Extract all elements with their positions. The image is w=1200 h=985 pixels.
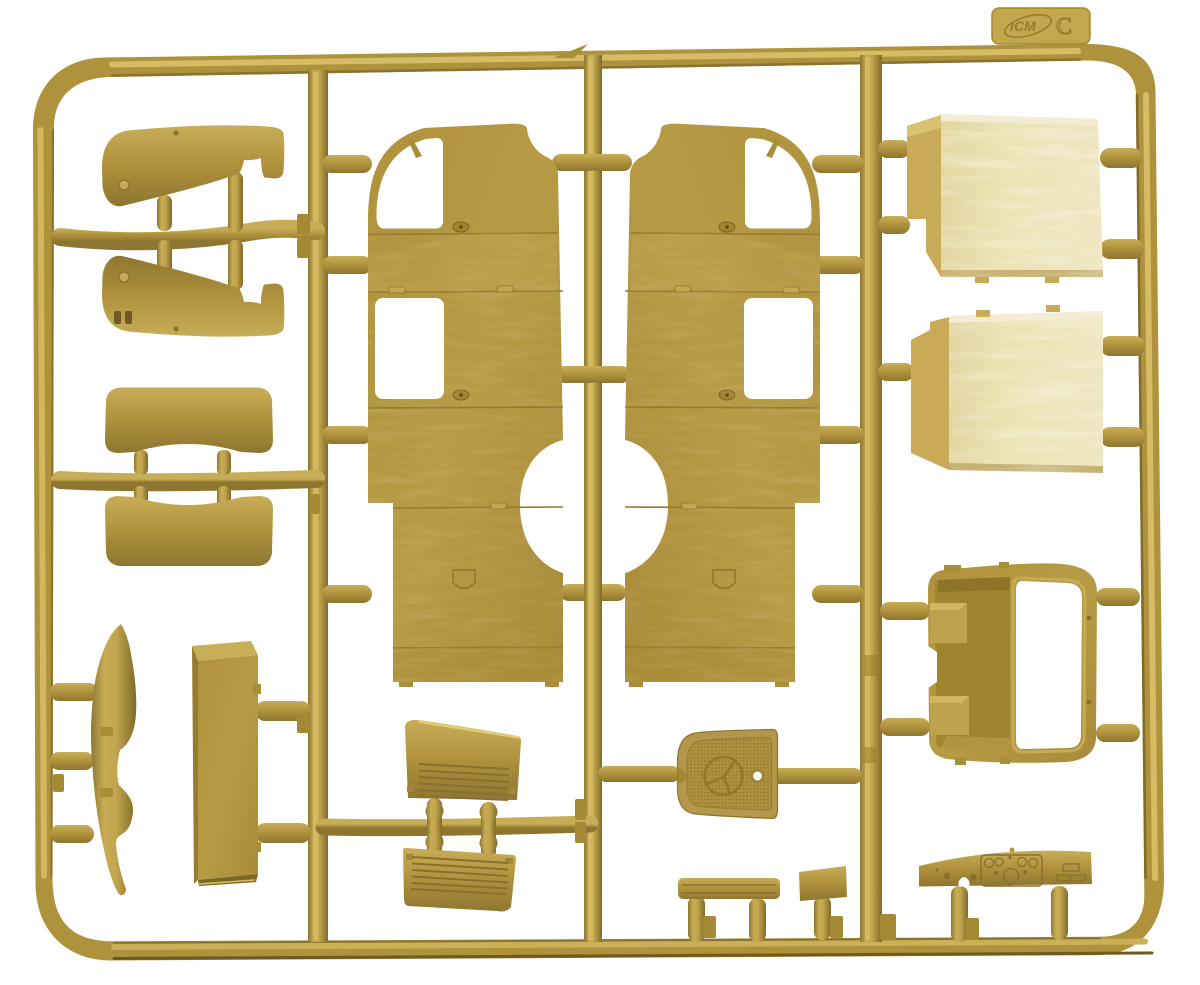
svg-text:C: C <box>1056 14 1072 40</box>
svg-text:ICM: ICM <box>1010 18 1036 34</box>
